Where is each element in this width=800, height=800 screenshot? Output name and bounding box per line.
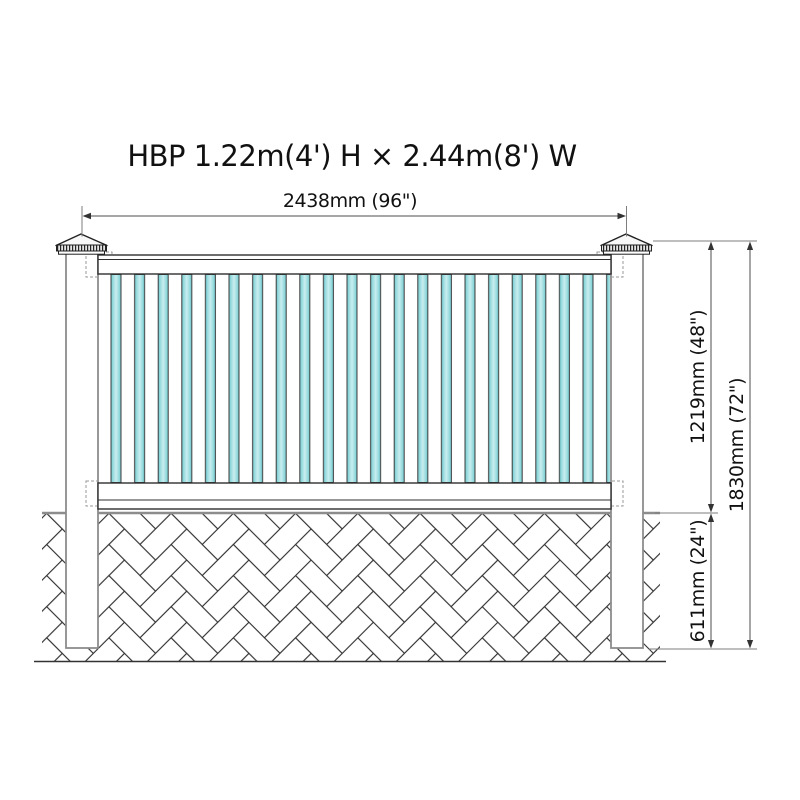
- left-post-cap: [56, 234, 107, 254]
- drawing-title: HBP 1.22m(4') H × 2.44m(8') W: [127, 139, 576, 173]
- panel-height-dimension-label: 1219mm (48"): [687, 310, 709, 444]
- left-cap-lip: [59, 251, 105, 254]
- below-ground-dimension: 611mm (24"): [687, 514, 714, 649]
- width-dimension-label: 2438mm (96"): [283, 190, 417, 212]
- fence-diagram-canvas: HBP 1.22m(4') H × 2.44m(8') W: [0, 0, 800, 800]
- ground-herringbone-fill: [42, 514, 660, 661]
- overall-height-dimension-label: 1830mm (72"): [726, 378, 748, 512]
- left-post: [66, 252, 98, 648]
- picket-panel: [99, 274, 610, 483]
- right-cap-band: [602, 245, 652, 251]
- bottom-rail: [98, 483, 611, 509]
- arrowhead-down: [747, 640, 753, 649]
- pickets: [99, 274, 610, 483]
- width-dimension: 2438mm (96"): [83, 190, 627, 219]
- below-ground-dimension-label: 611mm (24"): [687, 520, 709, 643]
- arrowhead-left: [83, 213, 92, 219]
- right-post: [611, 252, 643, 648]
- top-rail: [98, 255, 611, 274]
- arrowhead-down: [708, 504, 714, 513]
- arrowhead-up: [708, 242, 714, 251]
- arrowhead-up: [747, 242, 753, 251]
- overall-height-dimension: 1830mm (72"): [726, 242, 753, 649]
- ground-section: [34, 513, 666, 662]
- arrowhead-right: [618, 213, 627, 219]
- fence-dimension-diagram: HBP 1.22m(4') H × 2.44m(8') W: [0, 0, 800, 800]
- left-cap-band: [57, 245, 107, 251]
- panel-height-dimension: 1219mm (48"): [687, 242, 714, 513]
- right-post-cap: [601, 234, 652, 254]
- right-cap-lip: [604, 251, 650, 254]
